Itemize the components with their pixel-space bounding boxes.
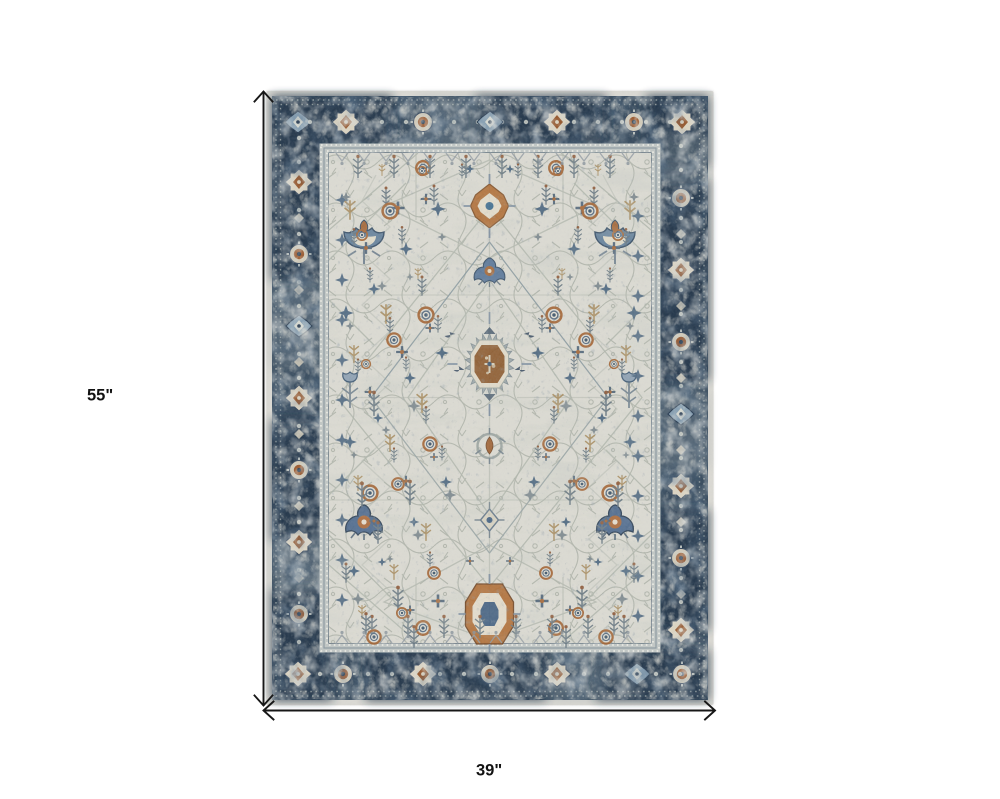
svg-text:55": 55"	[87, 387, 113, 405]
svg-text:39": 39"	[476, 762, 502, 780]
